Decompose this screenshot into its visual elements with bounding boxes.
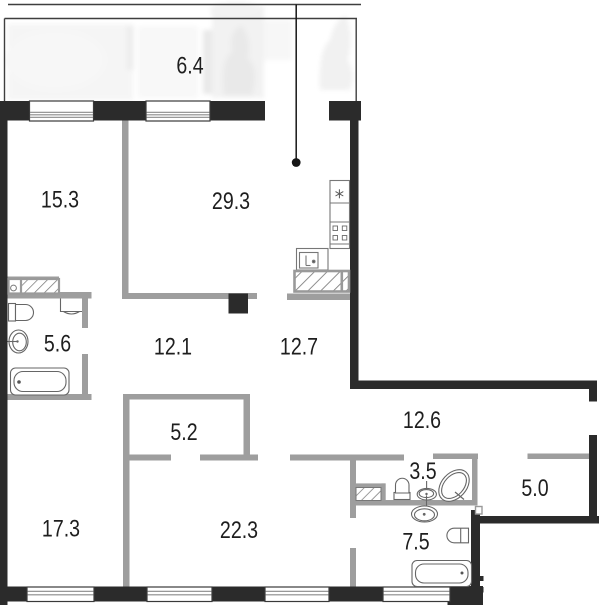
svg-text:12.6: 12.6 [403, 406, 441, 434]
svg-text:3.5: 3.5 [409, 457, 436, 485]
svg-text:12.1: 12.1 [154, 332, 192, 360]
svg-text:29.3: 29.3 [212, 187, 250, 215]
svg-text:15.3: 15.3 [41, 185, 79, 213]
svg-text:6.4: 6.4 [176, 51, 203, 79]
svg-text:22.3: 22.3 [220, 516, 258, 544]
svg-text:17.3: 17.3 [42, 514, 80, 542]
svg-text:5.0: 5.0 [521, 474, 548, 502]
svg-text:5.2: 5.2 [170, 418, 197, 446]
svg-text:7.5: 7.5 [402, 527, 429, 555]
svg-text:12.7: 12.7 [280, 332, 318, 360]
svg-text:5.6: 5.6 [44, 329, 71, 357]
